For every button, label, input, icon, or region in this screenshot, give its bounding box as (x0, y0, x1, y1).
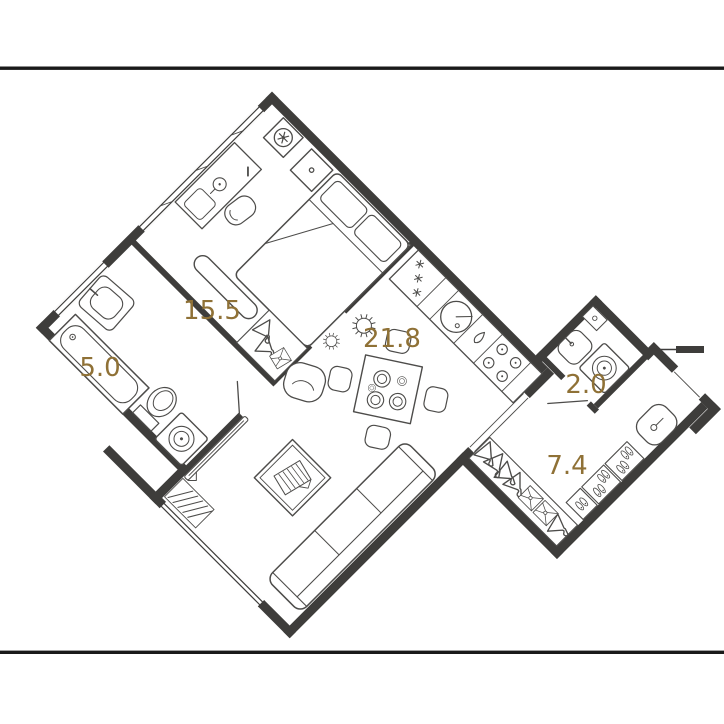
entrance-threshold (674, 372, 699, 397)
area-label-kitchen-living: 21.8 (363, 324, 421, 354)
area-label-wc: 2.0 (565, 370, 606, 400)
coffee-table (254, 440, 330, 516)
dining-chair (364, 424, 392, 451)
area-label-bedroom: 15.5 (183, 296, 241, 326)
area-label-bathroom: 5.0 (79, 353, 120, 383)
floor-plan: 15.5 5.0 21.8 2.0 7.4 (0, 0, 724, 724)
living-room-window (159, 501, 265, 607)
living-hall-threshold (470, 393, 528, 451)
dining-chair (327, 365, 354, 393)
dining-table (354, 355, 423, 424)
dining-chair (423, 385, 450, 413)
top-frame-line (0, 67, 724, 70)
area-label-hallway: 7.4 (546, 451, 587, 481)
bathroom-door-leaf (222, 382, 255, 415)
bottom-frame-line (0, 651, 724, 654)
floor-plan-page: 15.5 5.0 21.8 2.0 7.4 (0, 0, 724, 724)
